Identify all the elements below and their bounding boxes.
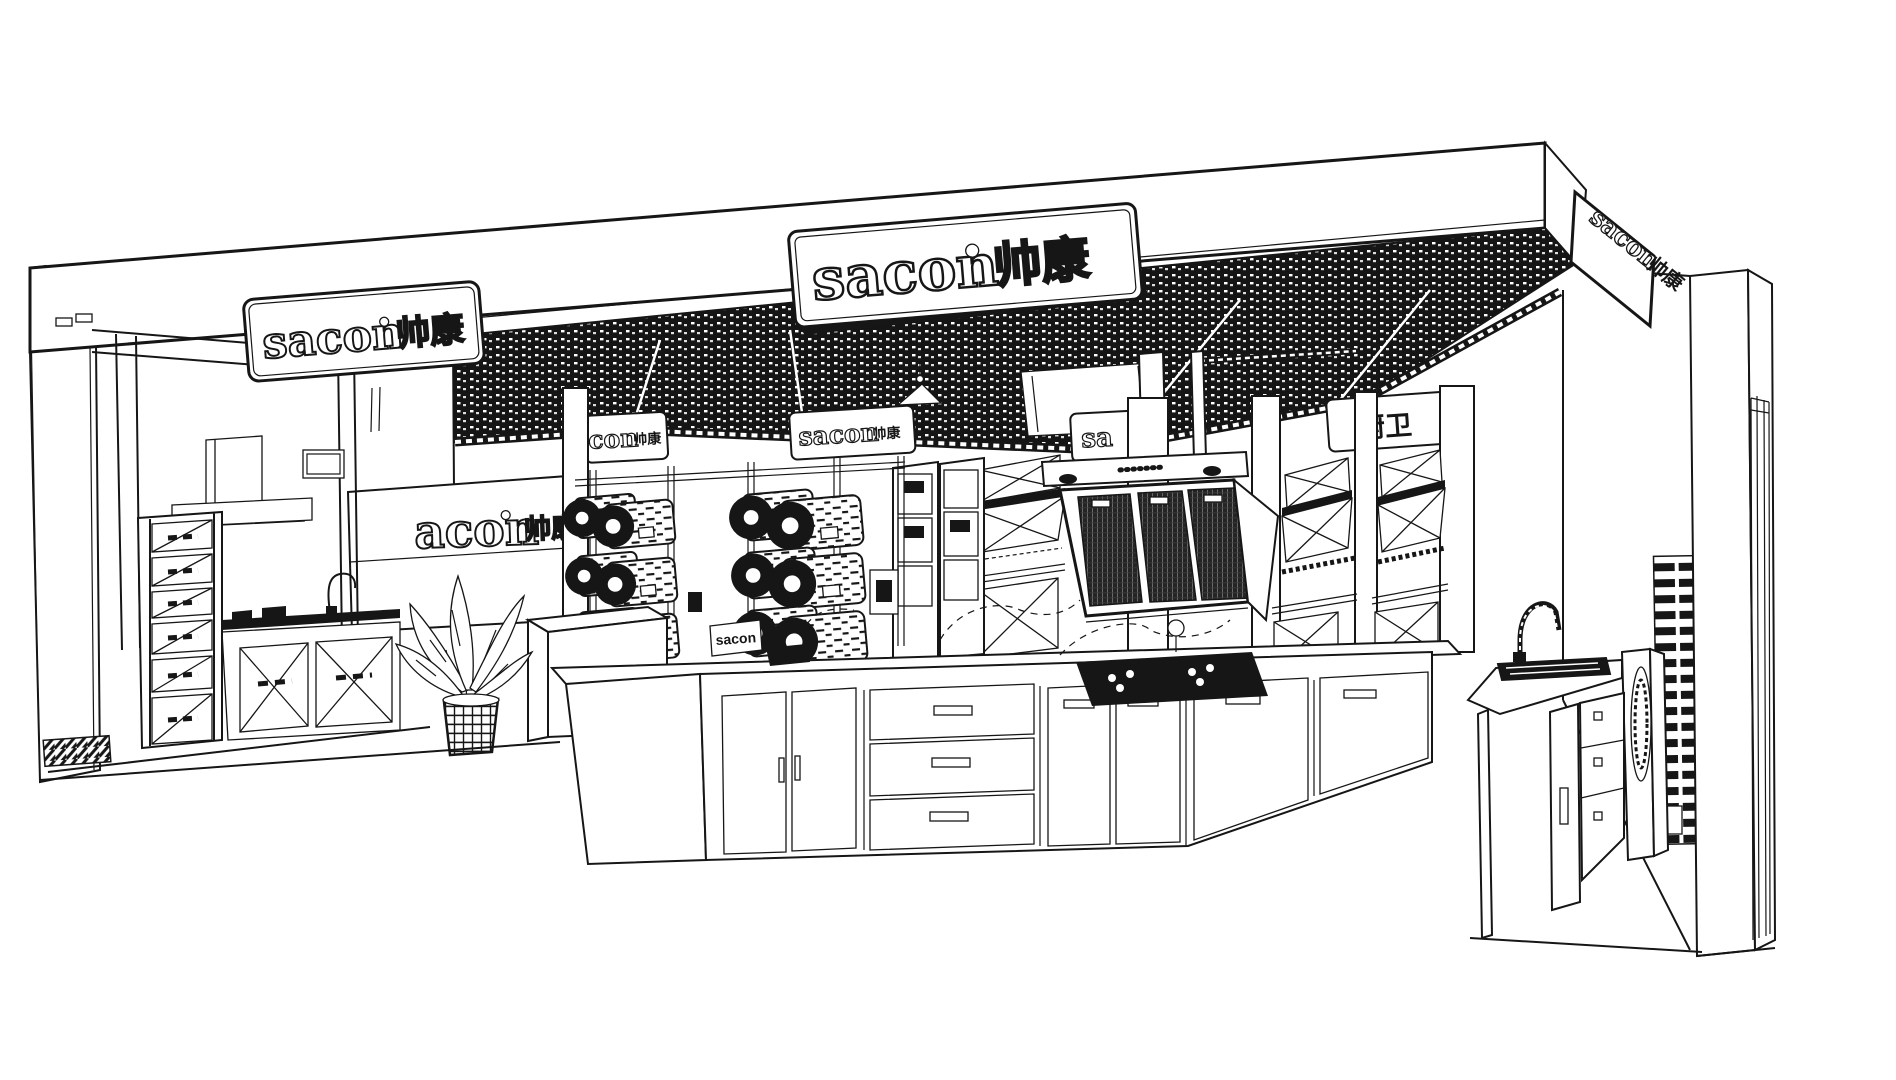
counter-support-panel: [1478, 710, 1492, 938]
tower-panel: [944, 512, 978, 556]
filter-handle: [1092, 500, 1110, 507]
gooseneck-faucet: [1520, 604, 1559, 660]
island-drawer-stack: [870, 684, 1034, 850]
cabinet-door-x: [316, 637, 392, 727]
hanging-sign-4: 厨卫: [1326, 391, 1451, 451]
island-door: [722, 692, 786, 854]
drawer-x: [152, 588, 212, 618]
cylinder-inlet-hole: [606, 576, 623, 593]
cylinder-badge: [822, 585, 840, 597]
logo-o-dot: [501, 510, 510, 519]
island-door: [792, 688, 856, 851]
drawing-canvas: con 帅康 sacon 帅康 sa 厨卫: [0, 0, 1896, 1080]
drawer-x: [152, 620, 212, 654]
hanging-sign-2: sacon 帅康: [789, 405, 916, 459]
display-bay-right-2: [1372, 450, 1448, 660]
sign-text-cn: 帅康: [395, 309, 466, 354]
tower-appliance-front: [950, 520, 970, 532]
counter-appliance: [688, 592, 702, 612]
tower-appliance-front: [904, 526, 924, 538]
drawer-x: [152, 520, 212, 552]
sink-drawer-stack: [1580, 693, 1624, 880]
display-bay-right-1: [1272, 458, 1357, 670]
pot-rim: [443, 694, 499, 706]
hanging-sign-1: con 帅康: [584, 412, 668, 463]
desk-side: [528, 620, 548, 741]
sign-text-latin: con: [588, 423, 640, 455]
appliance-towers: [893, 458, 984, 662]
filter-handle: [1204, 495, 1222, 502]
hood-strut-right: [1191, 351, 1206, 459]
island-logo-text: sacon: [715, 629, 756, 648]
bay-counter-edge: [1372, 584, 1448, 604]
drawer-x: [152, 694, 212, 744]
fascia-left-sign: sacon 帅康: [243, 281, 485, 382]
logo-o-dot: [965, 244, 979, 258]
pendant-knob: [917, 376, 924, 383]
wall-pillar: [1355, 392, 1377, 652]
cylinder-badge: [638, 527, 654, 538]
island-logo-stand: sacon: [710, 620, 762, 656]
burner-dot: [1206, 664, 1214, 672]
hood-filter-panel: [1078, 494, 1142, 606]
cylinder-inlet-hole: [742, 509, 759, 526]
right-pillar-front: [1690, 270, 1755, 956]
sign-support-posts: [371, 387, 380, 432]
stand-appliance: [876, 580, 892, 602]
wall-pillar: [1440, 386, 1474, 652]
sign-text-latin: sa: [1081, 423, 1114, 455]
drawer-handle-slot: [930, 812, 968, 821]
cylinder-badge: [820, 527, 838, 539]
sign-text-cn: 帅康: [991, 231, 1091, 295]
tower-appliance-front: [904, 481, 924, 493]
drawer-handle-slot: [934, 706, 972, 715]
cylinder-inlet-hole: [604, 518, 621, 535]
faucet-base: [1513, 652, 1526, 662]
tower-panel: [898, 518, 932, 562]
drawer-knob: [1594, 758, 1602, 766]
wok-ring: [1168, 620, 1184, 636]
sign-text-latin: sacon: [798, 418, 880, 452]
hood-bolt: [1203, 466, 1221, 476]
fascia-vent-mark: [56, 318, 72, 326]
drawer-knob: [1594, 812, 1602, 820]
right-sink-area: [1468, 556, 1701, 938]
burner-dot: [1116, 684, 1124, 692]
tower-panel: [898, 566, 932, 606]
drawer-x: [152, 656, 212, 692]
drawer-handle-slot: [932, 758, 970, 767]
fascia-vent-mark: [76, 314, 92, 322]
cylinder-inlet-hole: [575, 511, 590, 526]
island-gas-cooktop: [1076, 620, 1268, 706]
drawer-handle-slot: [1064, 700, 1094, 708]
door-handle: [779, 758, 784, 782]
island-left-end: [566, 674, 706, 864]
tower-panel: [944, 560, 978, 600]
wall-display-frame: [303, 450, 344, 478]
feature-range-hood: [1042, 452, 1278, 622]
bay-counter-edge: [1272, 594, 1357, 614]
logo-wall-text-latin: acon: [413, 501, 539, 560]
burner-dot: [1196, 678, 1204, 686]
filter-handle: [1150, 497, 1168, 504]
base-hatch-stripes: [43, 736, 111, 767]
cabinet-door-x: [240, 643, 308, 732]
hood-bolt: [1059, 474, 1077, 484]
drawer-x: [152, 554, 212, 586]
faucet-base: [326, 606, 337, 615]
showroom-line-drawing: con 帅康 sacon 帅康 sa 厨卫: [0, 0, 1896, 1080]
burner-dot: [1108, 674, 1116, 682]
island-door: [1048, 685, 1110, 846]
door-handle: [1560, 788, 1568, 824]
washer-side: [1650, 649, 1668, 856]
hood-chimney: [206, 436, 262, 508]
island-drawer: [870, 794, 1034, 850]
drawer-handle-slot: [1344, 690, 1376, 698]
cylinder-inlet-hole: [744, 567, 761, 584]
cylinder-inlet-hole: [577, 569, 592, 584]
tower-panel: [944, 470, 978, 508]
fascia-right-sign: sacon 帅康: [1571, 192, 1692, 326]
washing-machine: [1622, 649, 1668, 860]
cylinder-badge: [640, 585, 656, 596]
tall-drawer-unit: [138, 512, 222, 748]
drawer-knob: [1594, 712, 1602, 720]
sign-text-cn: 帅康: [633, 430, 663, 448]
burner-dot: [1188, 668, 1196, 676]
tower-panel: [898, 474, 932, 514]
sink-counter: [1468, 604, 1624, 938]
bay-lower-cabinet-x: [978, 578, 1058, 658]
burner-dot: [1126, 670, 1134, 678]
vignette-base-cabinets: [222, 622, 400, 740]
door-handle: [795, 756, 800, 780]
sign-text-cn: 帅康: [872, 424, 902, 443]
logo-o-dot: [379, 317, 389, 327]
